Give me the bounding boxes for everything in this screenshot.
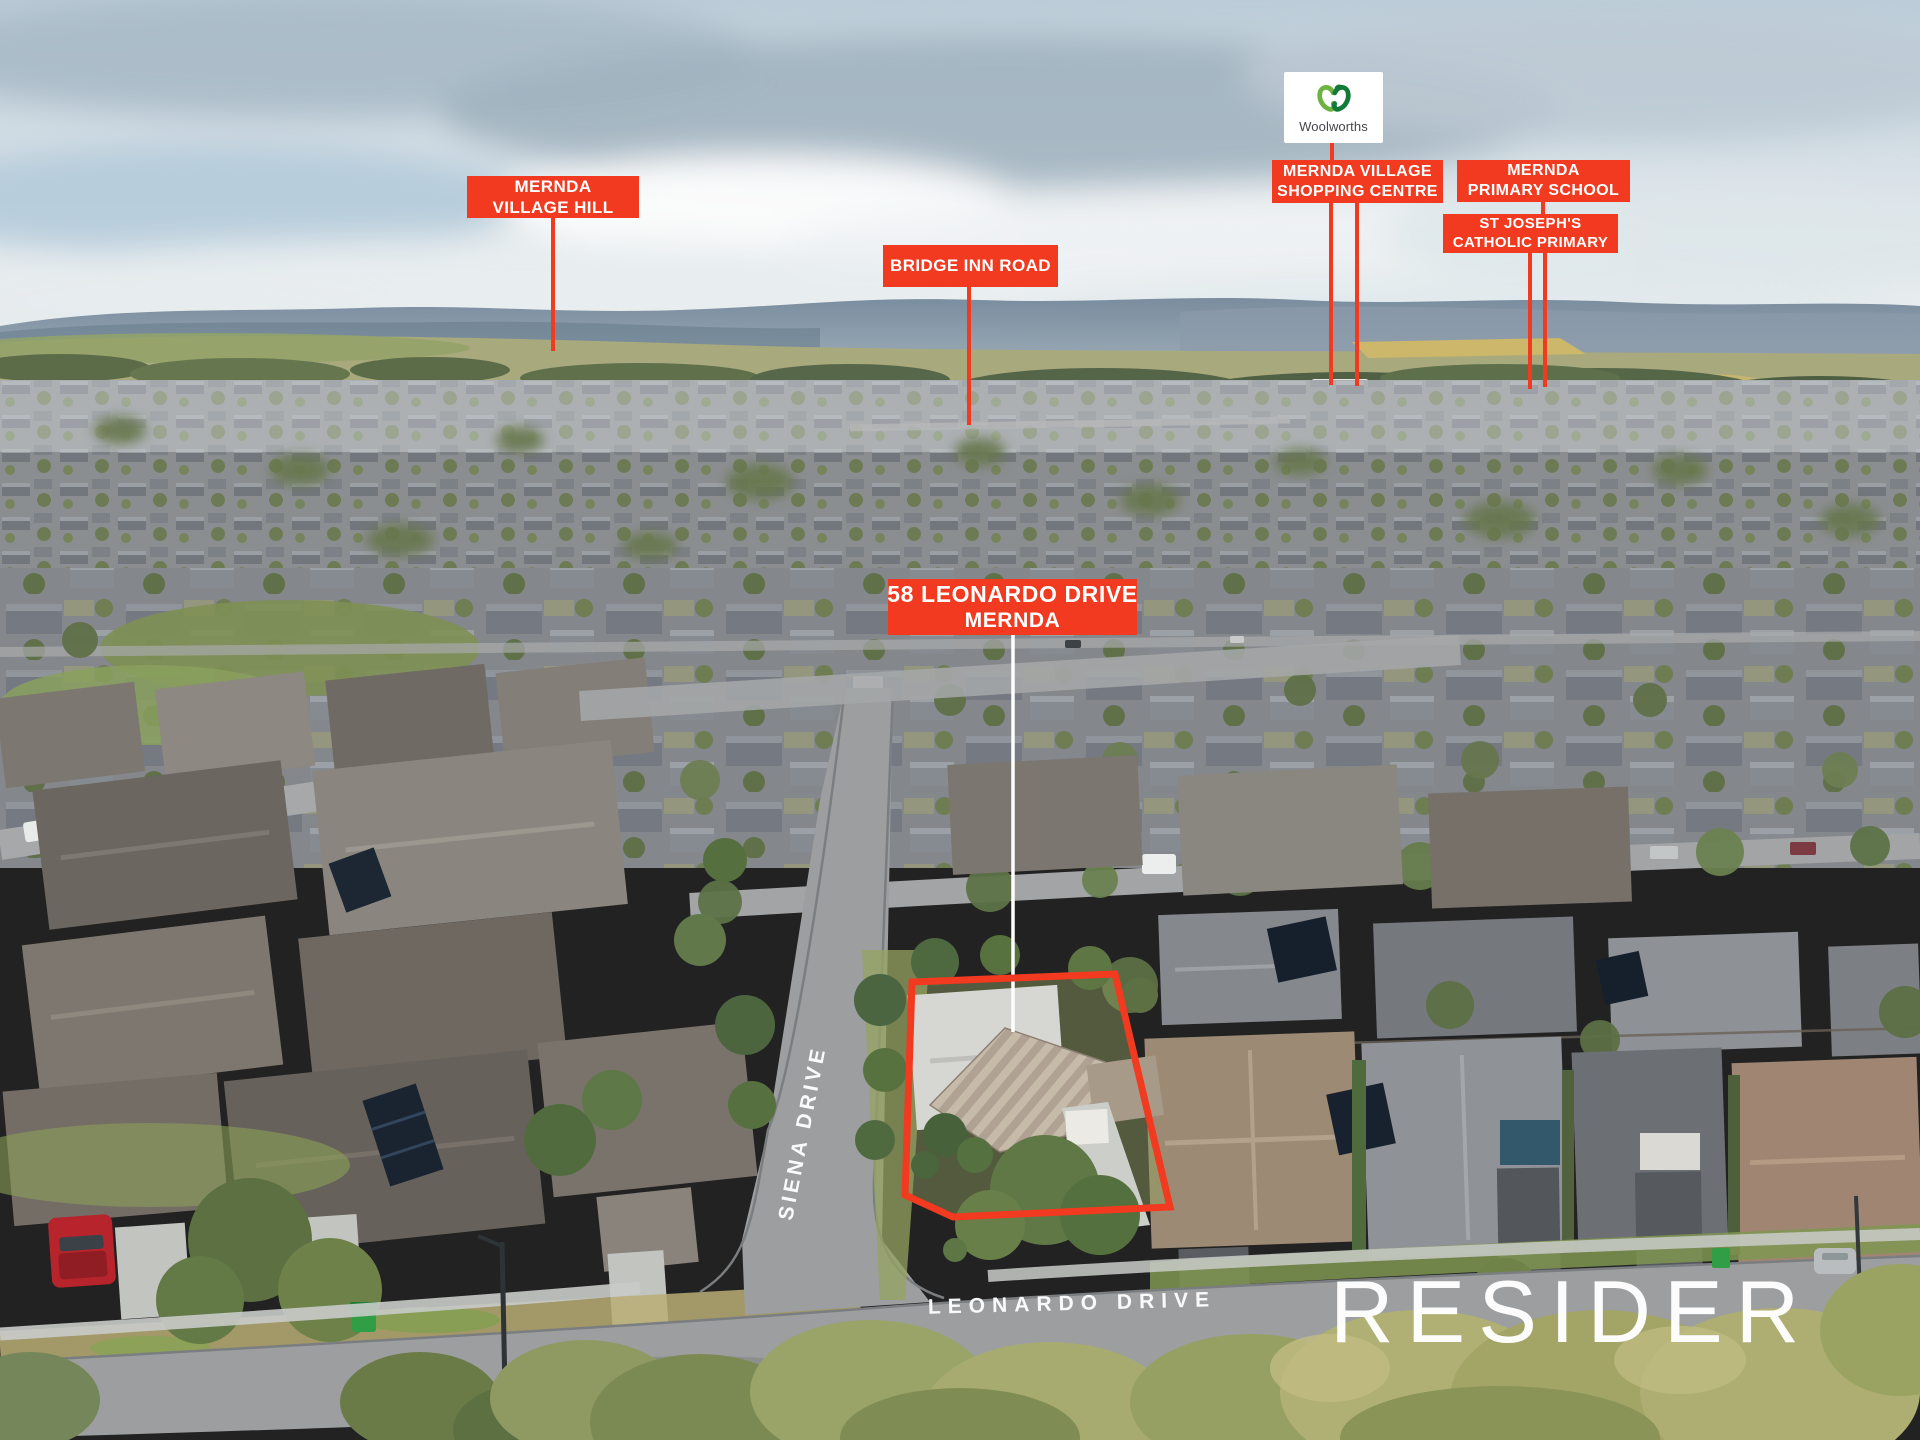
callout-mernda-village-hill: MERNDA VILLAGE HILL	[467, 176, 639, 218]
callout-line: VILLAGE HILL	[493, 197, 614, 218]
callout-line: CATHOLIC PRIMARY	[1453, 234, 1609, 253]
property-address-line: 58 LEONARDO DRIVE	[887, 580, 1137, 609]
woolworths-logo-text: Woolworths	[1299, 119, 1368, 134]
aerial-listing-photo: MERNDA VILLAGE HILL BRIDGE INN ROAD Wool…	[0, 0, 1920, 1440]
callout-line: PRIMARY SCHOOL	[1468, 181, 1619, 201]
callout-line: MERNDA VILLAGE	[1283, 162, 1432, 182]
callout-line: SHOPPING CENTRE	[1277, 182, 1438, 202]
callout-line: ST JOSEPH'S	[1479, 215, 1581, 234]
woolworths-logo-box: Woolworths	[1284, 72, 1383, 143]
callout-line: BRIDGE INN ROAD	[890, 255, 1051, 276]
callout-mernda-village-shopping-centre: MERNDA VILLAGE SHOPPING CENTRE	[1272, 160, 1443, 203]
callout-line: MERNDA	[1507, 161, 1580, 181]
callout-line: MERNDA	[514, 176, 591, 197]
woolworths-icon	[1315, 82, 1353, 118]
callout-property-address: 58 LEONARDO DRIVE MERNDA	[888, 579, 1137, 635]
brand-logo-resider: RESIDER	[1330, 1268, 1870, 1356]
callout-bridge-inn-road: BRIDGE INN ROAD	[883, 245, 1058, 287]
aerial-photo-background	[0, 0, 1920, 1440]
property-suburb-line: MERNDA	[965, 608, 1061, 634]
callout-st-josephs-catholic-primary: ST JOSEPH'S CATHOLIC PRIMARY	[1443, 214, 1618, 253]
callout-mernda-primary-school: MERNDA PRIMARY SCHOOL	[1457, 160, 1630, 202]
